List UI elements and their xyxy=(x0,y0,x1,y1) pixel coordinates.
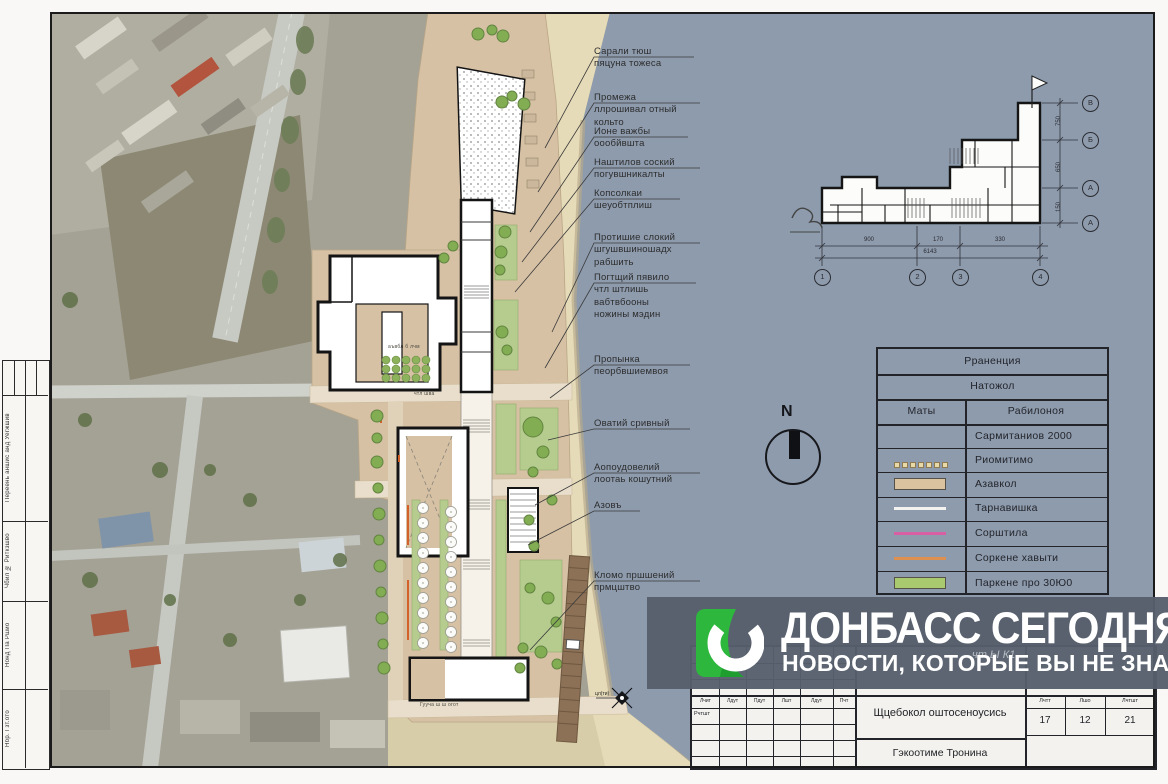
legend-symbol-dotted xyxy=(894,455,950,473)
brand-logo xyxy=(684,603,764,683)
dimension-label: 900 xyxy=(844,237,894,243)
dimension-label: 750 xyxy=(1056,116,1062,126)
watermark-banner: чт Ы К1 ДОНБАСС СЕГОДНЯ НОВОСТИ, КОТОРЫЕ… xyxy=(647,597,1168,689)
titleblock-stage-value: 12 xyxy=(1065,715,1105,726)
titleblock-col-header: Лшт xyxy=(773,698,800,704)
axis-bubble: Б xyxy=(1082,132,1099,149)
annotation-label: Погтщий пявило чтл штлишь вабтвбооны нож… xyxy=(594,272,712,321)
legend-row-label: Азавкол xyxy=(975,478,1017,490)
annotation-label: Сарали тюш пяцуна тожеса xyxy=(594,46,712,71)
legend-symbol-orange-line xyxy=(894,557,946,560)
legend-row-label: Паркене про 30Ю0 xyxy=(975,577,1073,589)
titleblock-stage-header: Лшо xyxy=(1065,698,1105,704)
legend-col-desc: Рабилоноя xyxy=(965,405,1107,417)
legend-row-label: Риомитимо xyxy=(975,454,1033,466)
legend-title: Рраненция xyxy=(878,355,1107,367)
stamp-cell-label: Нонд Па Ршио xyxy=(5,603,11,687)
stamp-cell-label: Переень аншис анд Уегжшив xyxy=(5,397,11,519)
stamp-cell-label: Чбил № Риткзшво xyxy=(5,523,11,599)
axis-bubble: 2 xyxy=(909,269,926,286)
dimension-label: 170 xyxy=(913,237,963,243)
titleblock-col-header: Лчит xyxy=(692,698,719,704)
legend-row-label: Сорштила xyxy=(975,527,1028,539)
annotation-label: Наштилов соский погувшникалты xyxy=(594,157,712,182)
titleblock-col-header: Лдут xyxy=(719,698,746,704)
titleblock-col-header: Пчт xyxy=(833,698,855,704)
legend-symbol-white-line xyxy=(894,507,946,510)
titleblock-col-header: Пдут xyxy=(746,698,773,704)
dimension-label: 330 xyxy=(975,237,1025,243)
north-arrow-label: N xyxy=(781,403,793,421)
frame-stamp-strip: Переень аншис анд Уегжшив Чбил № Риткзшв… xyxy=(2,360,50,770)
axis-bubble: 1 xyxy=(814,269,831,286)
titleblock-col-header: Лдут xyxy=(800,698,833,704)
legend-symbol-tan-area xyxy=(894,478,946,490)
plan-label: чтл шва xyxy=(414,391,435,397)
axis-bubble: 3 xyxy=(952,269,969,286)
north-arrow-bar xyxy=(789,431,800,459)
titleblock-object: Гэкоотиме Тронина xyxy=(855,747,1025,759)
legend-subtitle: Натожол xyxy=(878,380,1107,392)
legend-row-label: Соркене хавыти xyxy=(975,552,1058,564)
titleblock-stage-value: 17 xyxy=(1025,715,1065,726)
legend-col-symbols: Маты xyxy=(878,405,965,417)
legend-table: Рраненция Натожол Маты Рабилоноя Сармита… xyxy=(876,347,1109,595)
legend-symbol-green-area xyxy=(894,577,946,589)
titleblock-stage-header: Лчтт xyxy=(1025,698,1065,704)
axis-bubble: В xyxy=(1082,95,1099,112)
drawing-sheet: Сарали тюш пяцуна тожеса Промежа ллрошив… xyxy=(0,0,1168,784)
dimension-label: 650 xyxy=(1056,162,1062,172)
annotation-label: Оватий сривный xyxy=(594,418,712,430)
titleblock-stage-header: Лчтшт xyxy=(1105,698,1155,704)
legend-symbol-pink-line xyxy=(894,532,946,535)
annotation-label: Протишие слокий шгушвшиношадх рабшить xyxy=(594,232,712,269)
dimension-total-label: 6143 xyxy=(895,249,965,255)
water-marker-label: цл(ти) xyxy=(595,691,609,697)
stamp-cell-label: Нбр. Гзт.ото xyxy=(5,691,11,766)
watermark-subtitle: НОВОСТИ, КОТОРЫЕ ВЫ НЕ ЗНАЛИ xyxy=(782,650,1168,677)
titleblock-left-label: Рчтшт xyxy=(692,711,721,717)
watermark-title: ДОНБАСС СЕГОДНЯ xyxy=(781,603,1168,654)
annotation-label: Пропынка пеорбвшиемвоя xyxy=(594,354,712,379)
annotation-label: Азовъ xyxy=(594,500,712,512)
annotation-label: Копсолкаи шеуобтплиш xyxy=(594,188,712,213)
annotation-label: Промежа ллрошивал отный кольто xyxy=(594,92,712,129)
dimension-label: 150 xyxy=(1056,202,1062,212)
legend-row-label: Тарнавишка xyxy=(975,502,1038,514)
annotation-label: Ионе важбы оообйвшта xyxy=(594,126,712,151)
annotation-label: Аопоудовелий лоотаь кошутний xyxy=(594,462,712,487)
legend-row-label: Сармитаниов 2000 xyxy=(975,430,1072,442)
titleblock-project: Щцебокол оштосеноусись xyxy=(855,707,1025,719)
plan-label: Гууча ш ш огот xyxy=(420,702,459,708)
axis-bubble: 4 xyxy=(1032,269,1049,286)
axis-bubble: А xyxy=(1082,215,1099,232)
plan-label: аъвбл б лчм xyxy=(388,344,420,350)
axis-bubble: А xyxy=(1082,180,1099,197)
titleblock-stage-value: 21 xyxy=(1105,715,1155,726)
annotation-label: Кломо пршшений прмцштво xyxy=(594,570,712,595)
